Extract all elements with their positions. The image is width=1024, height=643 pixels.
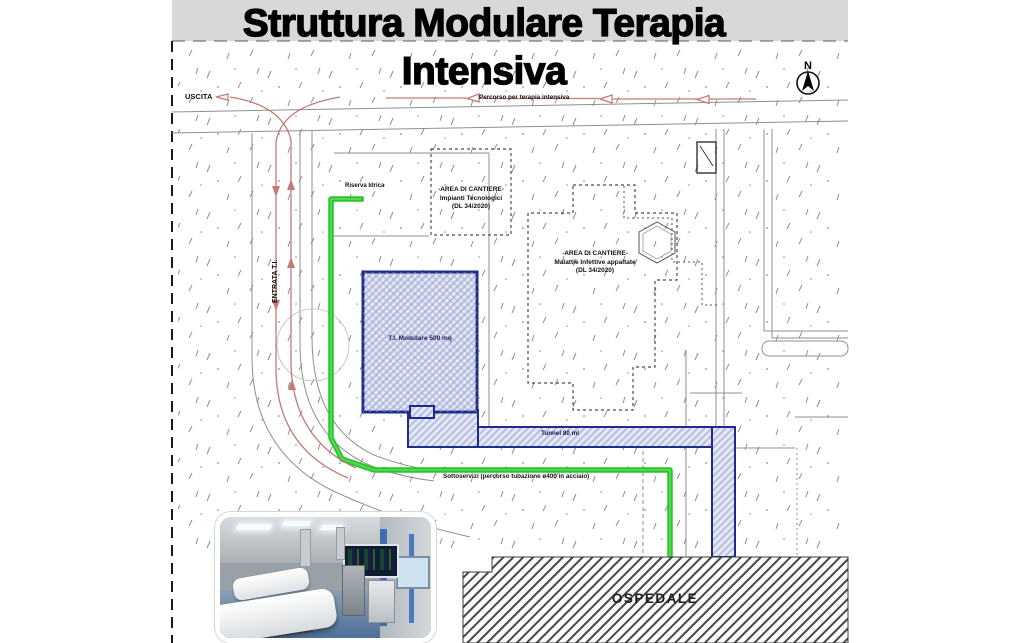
cantiere-malattie-line2: Malattie Infettive appaltate <box>540 259 650 268</box>
photo-equipment-cart <box>342 565 365 615</box>
tunnel-label: Tunnel 80 ml <box>505 430 615 439</box>
cantiere-impianti-line2: Impianti Tecnologici <box>428 195 514 204</box>
photo-ceiling-pendant <box>300 529 310 567</box>
ospedale-label: OSPEDALE <box>575 595 735 604</box>
photo-ceiling-light <box>282 521 312 526</box>
cantiere-malattie-line3: (DL 34/2020) <box>540 267 650 276</box>
cantiere-malattie-line1: -AREA DI CANTIERE- <box>540 250 650 259</box>
ti-modulare-label: T.I. Modulare 500 mq <box>363 335 477 344</box>
photo-ceiling-pendant <box>336 527 345 560</box>
riserva-idrica-label: Riserva Idrica <box>345 183 384 189</box>
icu-ward-photo <box>215 512 436 643</box>
page-title: Struttura Modulare Terapia Intensiva <box>204 0 764 96</box>
north-label: N <box>804 60 812 72</box>
photo-equipment-cart <box>368 580 395 623</box>
sottoservizi-label: Sottoservizi (percorso tubazione ø400 in… <box>443 473 589 480</box>
photo-ceiling-light <box>235 524 272 530</box>
ti-modulare-block <box>363 272 477 418</box>
cantiere-impianti-label: -AREA DI CANTIERE- Impianti Tecnologici … <box>428 186 514 212</box>
cantiere-impianti-line1: -AREA DI CANTIERE- <box>428 186 514 195</box>
cantiere-malattie-label: -AREA DI CANTIERE- Malattie Infettive ap… <box>540 250 650 276</box>
entrata-label: ENTRATA T.I. <box>272 260 279 303</box>
slide: N Struttura Modulare Terapia Intensiva U… <box>0 0 1024 643</box>
cantiere-impianti-line3: (DL 34/2020) <box>428 203 514 212</box>
photo-window <box>396 556 430 589</box>
